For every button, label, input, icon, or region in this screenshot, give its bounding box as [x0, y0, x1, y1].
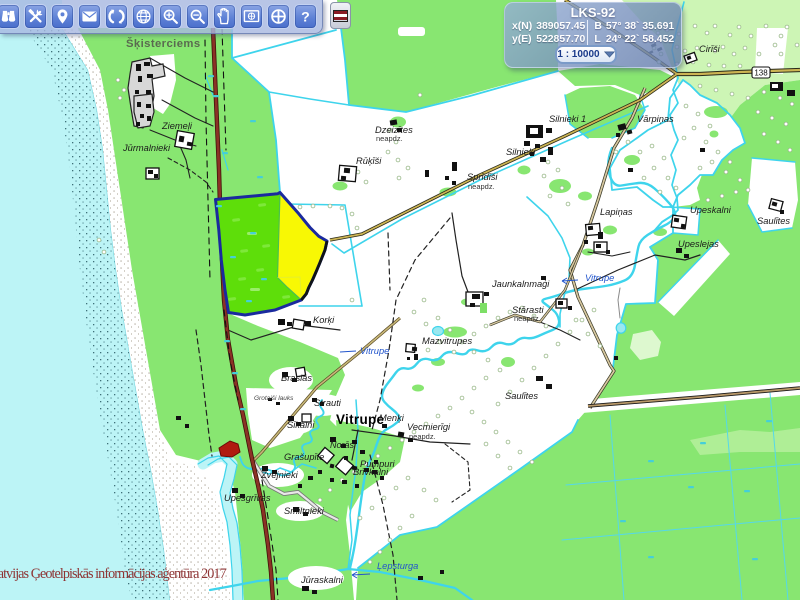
svg-text:neapdz.: neapdz. — [468, 182, 495, 191]
svg-text:Braslas: Braslas — [281, 373, 312, 383]
svg-text:Sīkalni: Sīkalni — [287, 420, 315, 430]
svg-text:Vecmierīgi: Vecmierīgi — [407, 422, 451, 432]
svg-text:Šķisterciems: Šķisterciems — [126, 37, 201, 50]
svg-text:Jūrmalnieki: Jūrmalnieki — [122, 143, 171, 153]
svg-text:138: 138 — [754, 69, 768, 78]
svg-text:?: ? — [301, 9, 310, 25]
svg-text:Zvejnieki: Zvejnieki — [260, 470, 299, 480]
svg-text:Upesgrīvas: Upesgrīvas — [224, 493, 271, 503]
svg-text:Upeskalni: Upeskalni — [690, 205, 732, 215]
svg-text:Silnieki 1: Silnieki 1 — [549, 114, 586, 124]
svg-text:Vitrupe: Vitrupe — [360, 346, 389, 356]
svg-text:Ļepsturga: Ļepsturga — [377, 561, 418, 571]
svg-text:Ziemeļi: Ziemeļi — [161, 121, 193, 131]
svg-text:Norās: Norās — [330, 440, 355, 450]
svg-text:Saulītes: Saulītes — [757, 216, 790, 226]
svg-text:Silnieki: Silnieki — [506, 147, 536, 157]
svg-text:Saulītes: Saulītes — [505, 391, 538, 401]
svg-text:Vārpiņas: Vārpiņas — [637, 114, 674, 124]
svg-text:Grotaiši lauks: Grotaiši lauks — [254, 395, 294, 402]
svg-text:neapdz.: neapdz. — [514, 314, 541, 323]
svg-text:Brīvkalni: Brīvkalni — [353, 467, 389, 477]
svg-text:Lapiņas: Lapiņas — [600, 207, 633, 217]
svg-text:Latvijas Ģeotelpiskās informāc: Latvijas Ģeotelpiskās informācijas aģent… — [0, 566, 227, 582]
svg-text:Menķi: Menķi — [379, 413, 405, 423]
svg-text:neapdz.: neapdz. — [409, 432, 436, 441]
svg-text:Mazvitrupes: Mazvitrupes — [422, 336, 472, 346]
svg-text:Grašupīte: Grašupīte — [284, 452, 324, 462]
svg-text:Smiltnieki: Smiltnieki — [284, 506, 325, 516]
svg-text:Vitrupe: Vitrupe — [336, 412, 385, 427]
svg-text:Cirīši: Cirīši — [699, 44, 721, 54]
svg-text:Upeslejas: Upeslejas — [678, 239, 719, 249]
svg-text:Vitrupe: Vitrupe — [585, 273, 614, 283]
svg-text:neapdz.: neapdz. — [376, 134, 403, 143]
svg-text:Sprīdīši: Sprīdīši — [467, 172, 498, 182]
svg-text:Rūķīši: Rūķīši — [356, 156, 382, 166]
svg-text:Korķi: Korķi — [313, 315, 335, 325]
svg-text:Jaunkalnmaģi: Jaunkalnmaģi — [491, 279, 550, 289]
svg-text:Jūraskalni: Jūraskalni — [300, 575, 344, 585]
svg-text:Strauti: Strauti — [314, 398, 342, 408]
